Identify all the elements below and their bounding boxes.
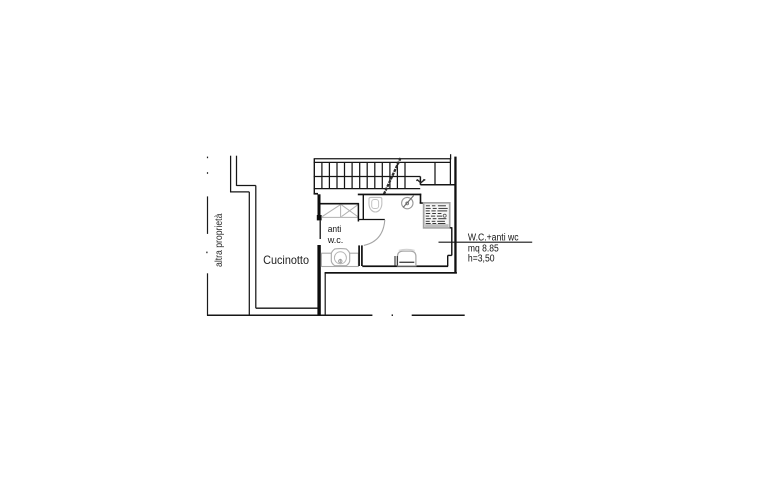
svg-text:Cucinotto: Cucinotto <box>263 253 309 267</box>
svg-text:w.c.: w.c. <box>327 234 344 245</box>
svg-text:altra proprietà: altra proprietà <box>214 213 225 267</box>
svg-text:h=3,50: h=3,50 <box>468 253 495 264</box>
svg-text:anti: anti <box>328 223 342 234</box>
svg-text:W.C.+anti wc: W.C.+anti wc <box>468 233 519 244</box>
